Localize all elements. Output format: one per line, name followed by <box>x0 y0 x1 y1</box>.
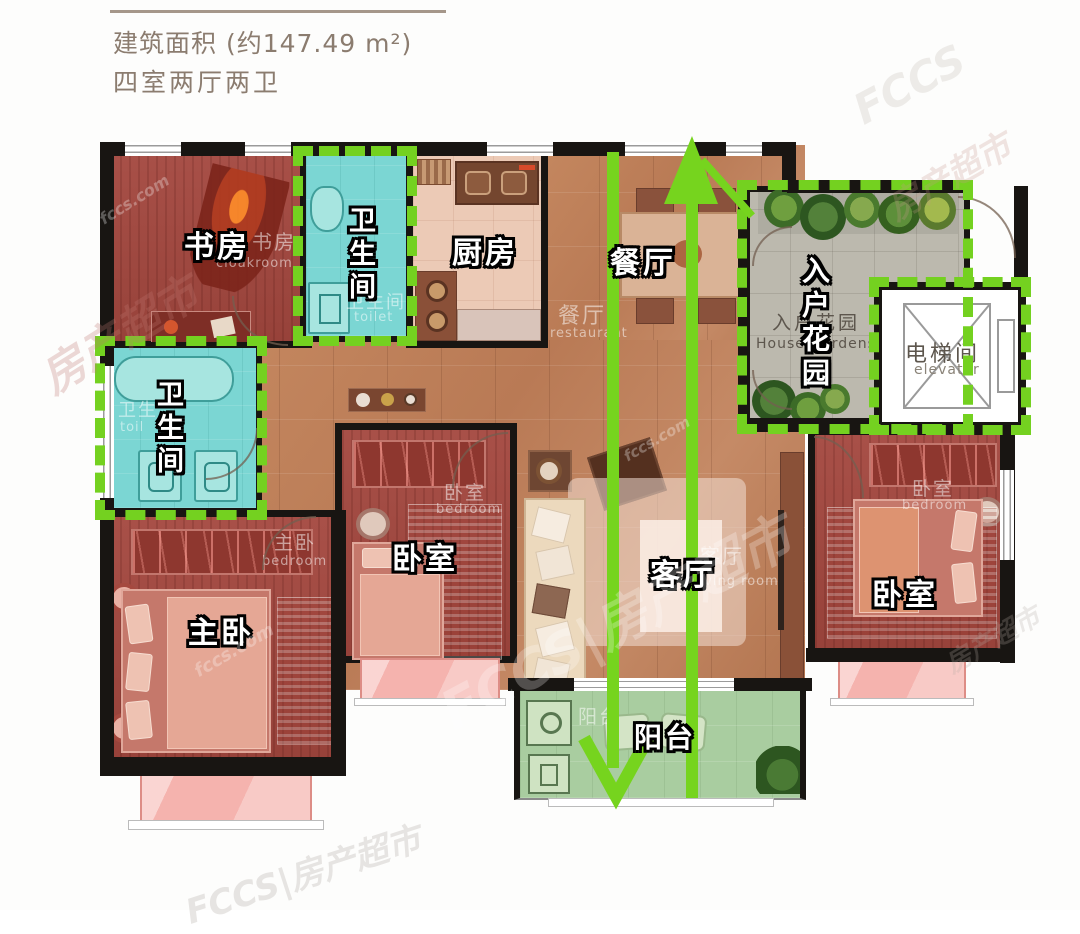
wall-bedroom-right-bottom <box>806 648 1014 662</box>
console-plant <box>381 393 394 406</box>
building-area-label: 建筑面积 (约147.49 m²) <box>113 24 412 60</box>
window <box>625 142 691 156</box>
master-rug <box>277 597 333 745</box>
kitchen-label: 厨房 <box>452 228 518 272</box>
bedroom-middle-ghost-en: bedroom <box>436 502 501 517</box>
balcony-cabinet <box>528 754 570 794</box>
table-lamp-icon <box>536 458 562 484</box>
floor-plan-page: 建筑面积 (约147.49 m²) 四室两厅两卫 书房 cloakroom 书房 <box>0 0 1080 910</box>
sofa <box>524 498 586 698</box>
bedroom-right-ghost-cn: 卧室 <box>912 474 954 501</box>
wall-master-bottom <box>100 758 346 776</box>
bedroom-middle-label: 卧室 <box>392 534 458 578</box>
header-rule <box>110 10 446 13</box>
washer-icon <box>526 700 572 746</box>
garden-plant <box>844 190 880 228</box>
bedroom-right-ghost-en: bedroom <box>902 498 967 513</box>
wall-garden-top <box>787 180 969 193</box>
window <box>125 142 181 156</box>
dining-centerpiece <box>672 240 702 268</box>
toilet-top-label: 卫生间 <box>340 206 379 305</box>
bedroom-middle-bay-sill <box>354 698 506 706</box>
living-label: 客厅 <box>650 550 716 594</box>
console-plate <box>356 393 370 407</box>
wall-entry-right <box>1014 186 1028 290</box>
tv-icon <box>778 510 784 630</box>
layout-type-label: 四室两厅两卫 <box>113 63 281 99</box>
kitchen-stove <box>415 271 457 341</box>
toilet-left-ghost-en: toil <box>120 420 144 435</box>
bedroom-right-bay-sill <box>830 698 974 706</box>
kitchen-sink <box>455 161 539 205</box>
bedroom-right-label: 卧室 <box>872 570 938 614</box>
garden-plant <box>764 188 804 228</box>
bedroom-middle-pouf <box>356 508 390 540</box>
toilet-top-ghost-en: toilet <box>354 310 393 325</box>
dining-label: 餐厅 <box>610 238 676 282</box>
balcony-label: 阳台 <box>634 716 696 756</box>
elevator-ghost-en: elevator <box>914 362 980 378</box>
wall-garden-left <box>738 186 750 430</box>
master-label: 主卧 <box>188 608 254 652</box>
window <box>726 142 762 156</box>
master-bay-sill <box>128 820 324 830</box>
window <box>245 142 291 156</box>
dining-chair <box>698 298 736 324</box>
toilet-icon <box>310 186 344 232</box>
garden-plant <box>918 190 956 230</box>
dining-chair <box>636 188 674 214</box>
garden-plant <box>878 194 920 234</box>
window <box>487 142 553 156</box>
study-ghost-cn: 书房 <box>252 226 296 255</box>
bedroom-middle-bay-window <box>360 658 500 700</box>
dining-ghost-en: restaurant <box>550 326 628 341</box>
garden-label: 入户花园 <box>794 256 834 392</box>
watermark: FCCS <box>845 35 973 134</box>
wall-master-right <box>331 510 346 776</box>
window-bedroom-right <box>1000 470 1014 560</box>
balcony-plant <box>756 746 800 794</box>
window-bathroom-left <box>100 366 114 498</box>
wall-top <box>100 142 796 156</box>
balcony-ghost-cn: 阳台 <box>578 702 620 729</box>
console-bowl <box>404 393 417 406</box>
dining-chair <box>636 298 674 324</box>
kitchen-rack <box>417 159 451 185</box>
balcony-railing <box>548 798 774 807</box>
balcony-door-window <box>574 678 734 691</box>
garden-plant <box>800 194 846 240</box>
entry-door-arc <box>958 196 1016 258</box>
study-label: 书房 <box>184 222 250 266</box>
toilet-left-label: 卫生间 <box>148 380 187 479</box>
master-bay-window <box>140 768 312 822</box>
dining-chair <box>698 188 736 214</box>
kitchen-counter <box>457 309 541 341</box>
